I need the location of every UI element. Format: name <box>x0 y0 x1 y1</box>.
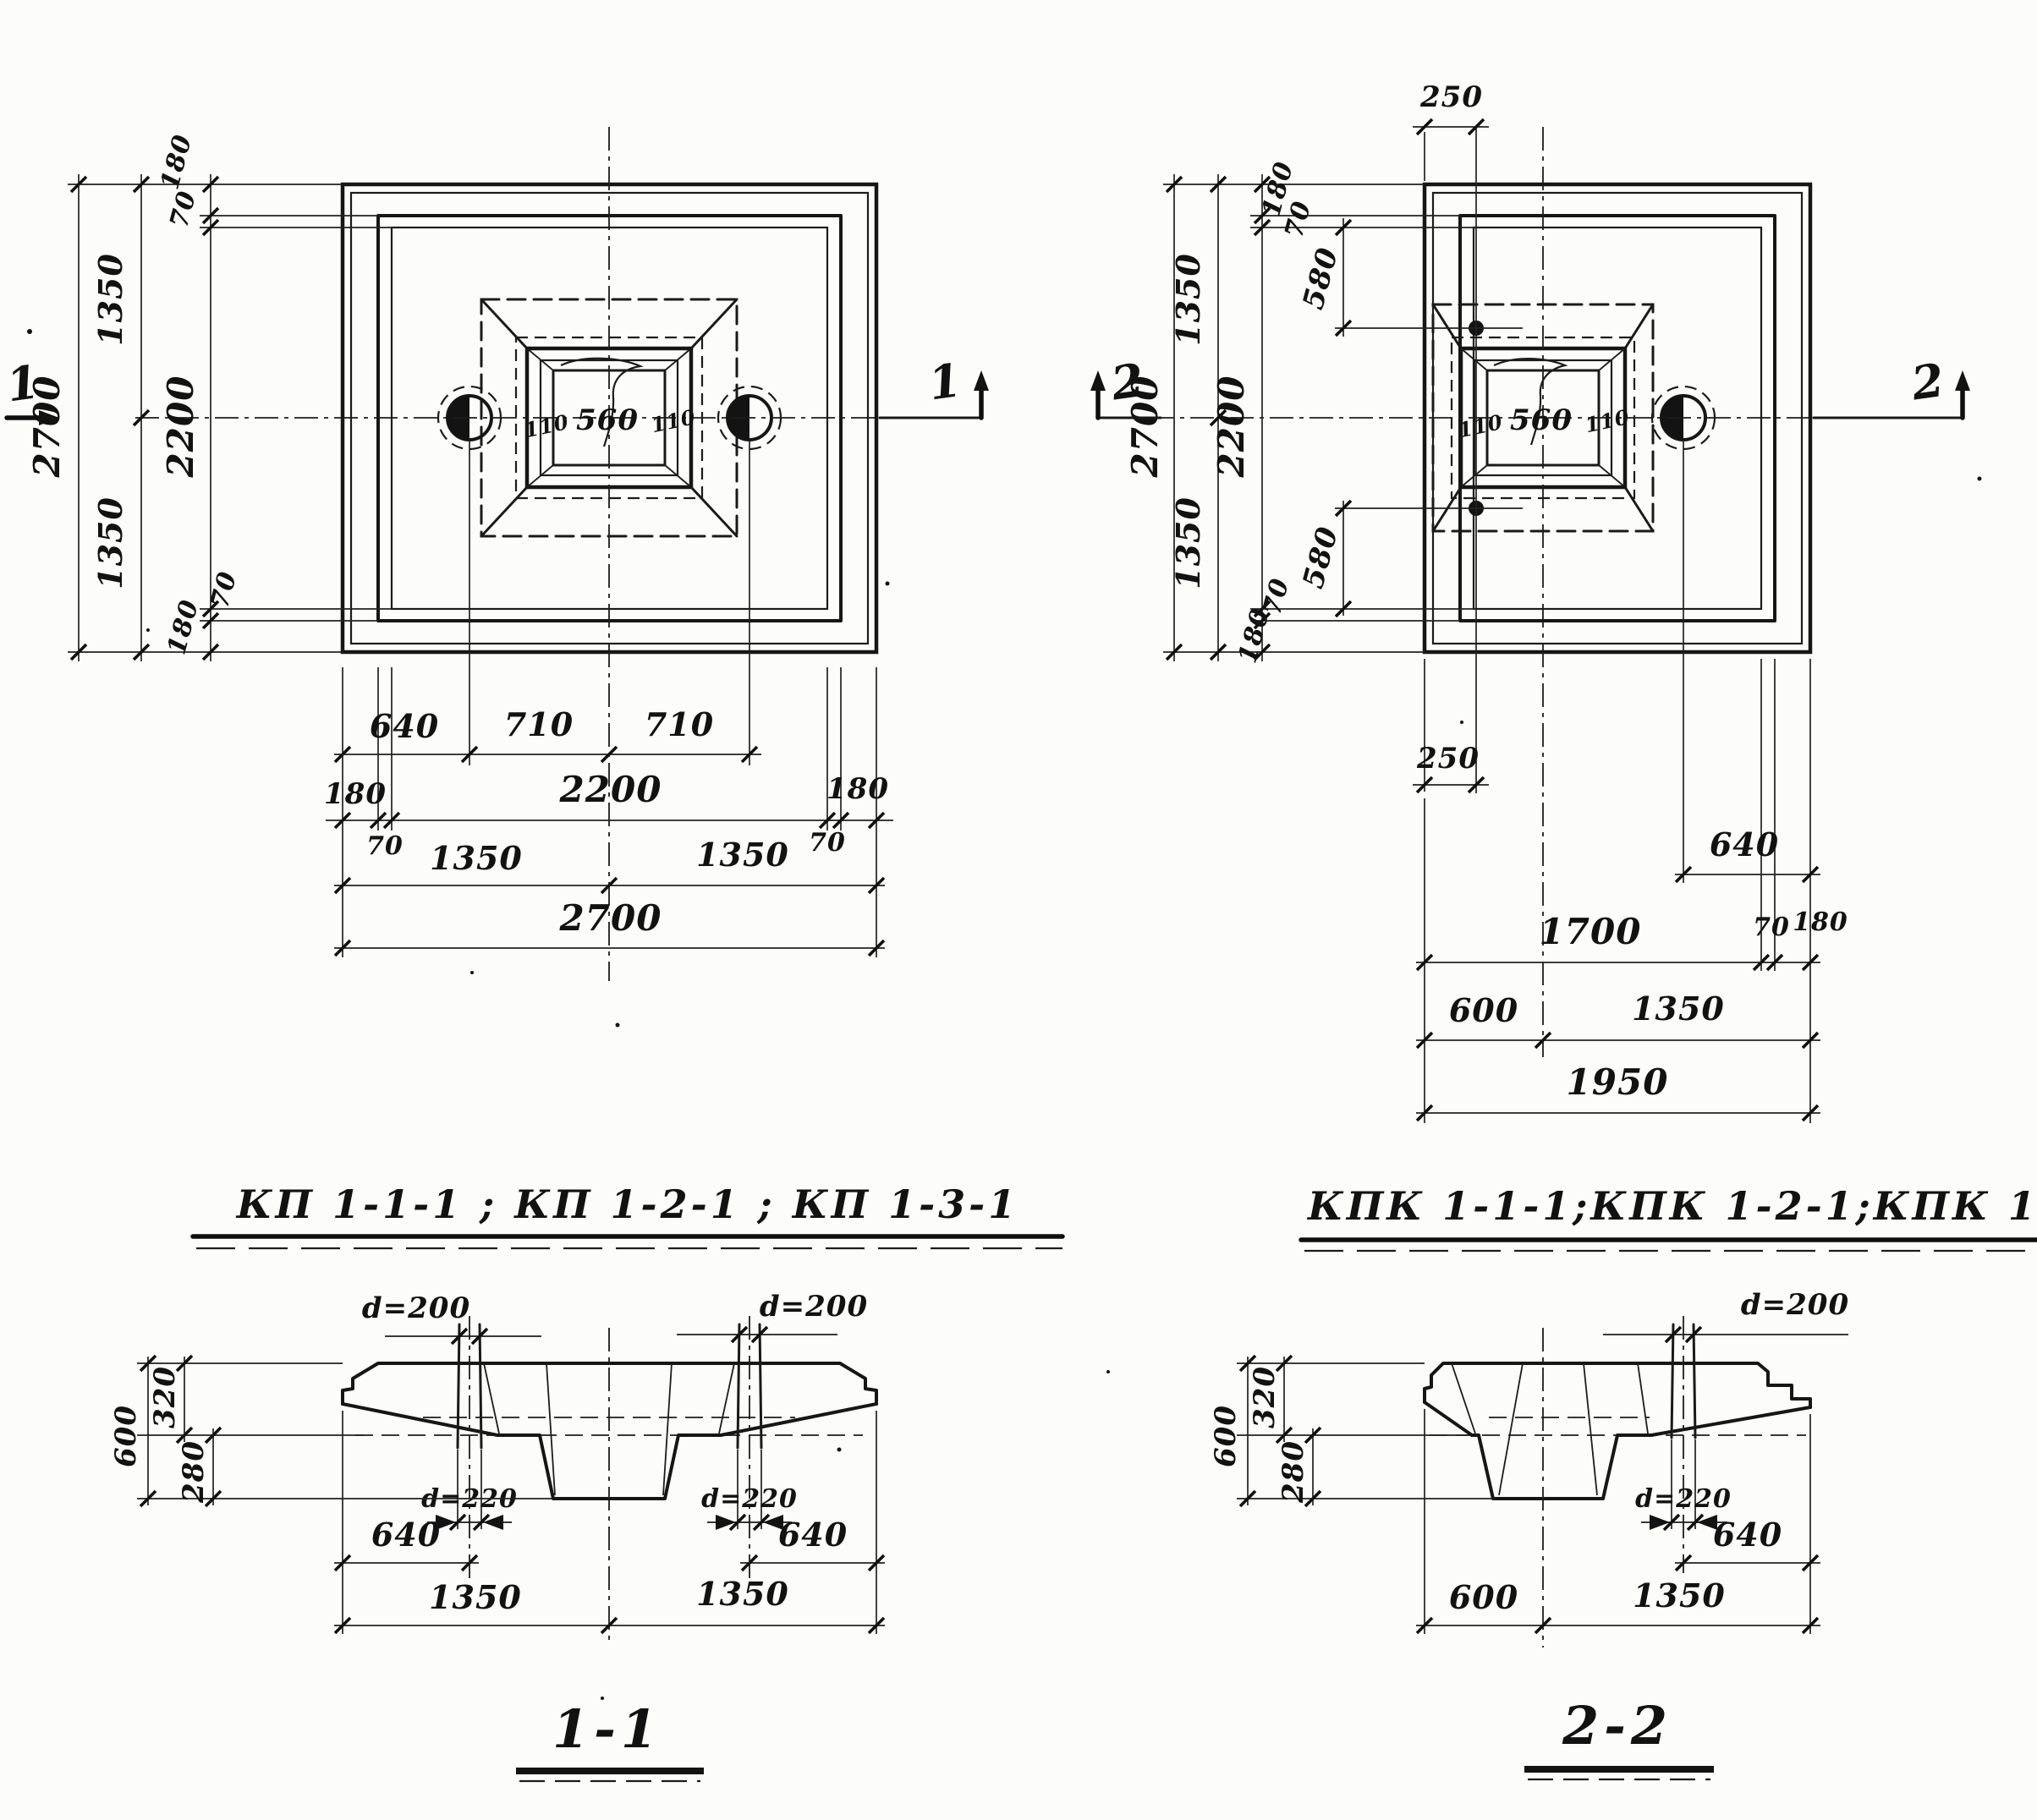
section-mark-1-right: 1 <box>880 353 989 418</box>
dim-label: 640 <box>778 1516 848 1554</box>
dim-label: 580 <box>1296 523 1345 592</box>
dim-label: 2700 <box>559 897 662 939</box>
dim-label: 1350 <box>1633 1576 1726 1614</box>
dim-label: 180 <box>162 596 205 657</box>
left-plan-side-dims: 2700 1350 1350 180 70 2200 70 180 <box>26 131 392 661</box>
dim-label: 1350 <box>696 1575 789 1613</box>
dim-label: 1350 <box>1169 253 1207 346</box>
dim-label: 320 <box>148 1366 182 1428</box>
section-2-2-dims: d=200 d=220 600 320 280 <box>1209 1288 1849 1634</box>
section-1-1: d=200 d=200 d=220 d=220 <box>109 1290 885 1781</box>
dim-label: 1350 <box>429 1578 522 1616</box>
dim-label: 640 <box>1713 1516 1782 1554</box>
dim-label: 250 <box>1416 742 1480 776</box>
dim-label: 1350 <box>696 836 789 874</box>
dim-label: 600 <box>109 1405 143 1467</box>
dim-label: 1350 <box>1169 496 1207 589</box>
dim-label: 560 <box>1510 403 1573 437</box>
section-1-1-dims: d=200 d=200 d=220 d=220 <box>109 1290 885 1634</box>
dim-label: 640 <box>1710 825 1779 863</box>
dim-label: 70 <box>1753 913 1790 942</box>
dim-label: 710 <box>645 705 714 743</box>
right-plan-socket-dims: 110 560 110 <box>1456 403 1632 442</box>
dim-label: 180 <box>155 131 198 192</box>
section-mark-label: 2 <box>1908 353 1948 411</box>
dim-label: 110 <box>1456 409 1505 442</box>
dim-label: d=200 <box>760 1290 868 1324</box>
dim-label: 180 <box>826 772 889 806</box>
dim-label: 280 <box>177 1440 211 1504</box>
dim-label: 70 <box>164 188 202 231</box>
dim-label: 180 <box>324 777 387 811</box>
section-1-1-linework <box>343 1316 876 1642</box>
left-series-title: КП 1-1-1 ; КП 1-2-1 ; КП 1-3-1 <box>235 1181 1019 1227</box>
dim-label: 1350 <box>91 253 129 346</box>
dim-label: 280 <box>1277 1440 1310 1504</box>
dim-label: 1350 <box>430 839 523 877</box>
dim-label: 710 <box>504 705 574 743</box>
section-mark-label: 1 <box>925 353 965 411</box>
dim-label: d=220 <box>1635 1484 1732 1514</box>
drawing-canvas: 2700 1350 1350 180 70 2200 70 180 110 56… <box>0 0 2037 1820</box>
dim-label: 180 <box>1233 605 1276 666</box>
section-mark-2-right: 2 <box>1814 353 1970 418</box>
dim-label: 600 <box>1209 1405 1243 1467</box>
dim-label: 320 <box>1248 1366 1282 1428</box>
dim-label: d=200 <box>1741 1288 1849 1322</box>
dim-label: d=220 <box>701 1484 798 1514</box>
dim-label: 1350 <box>91 496 129 589</box>
right-plan-side-dims: 2700 1350 1350 180 70 2200 70 180 580 58… <box>1124 158 1474 666</box>
section-2-2-title: 2-2 <box>1562 1695 1672 1757</box>
dim-label: 70 <box>366 831 404 861</box>
dim-label: 640 <box>371 1516 441 1554</box>
dim-label: 600 <box>1449 991 1518 1029</box>
dim-label: 2200 <box>160 376 201 479</box>
dim-label: 180 <box>1793 907 1848 937</box>
dim-label: 1950 <box>1567 1061 1669 1103</box>
dim-label: 110 <box>522 409 571 442</box>
series-titles: КП 1-1-1 ; КП 1-2-1 ; КП 1-3-1 КПК 1-1-1… <box>193 1181 2037 1251</box>
dim-label: 1350 <box>1632 989 1725 1028</box>
section-mark-label: 1 <box>3 354 43 413</box>
dim-label: 70 <box>809 828 846 858</box>
right-plan-view: 2700 1350 1350 180 70 2200 70 180 580 58… <box>1090 80 1970 1123</box>
section-1-1-title: 1-1 <box>552 1698 662 1760</box>
dim-label: 2200 <box>1211 376 1252 479</box>
dim-label: 1700 <box>1540 911 1642 952</box>
dim-label: 640 <box>370 707 439 745</box>
dim-label: 560 <box>576 403 639 437</box>
section-2-2: d=200 d=220 600 320 280 <box>1209 1288 1849 1779</box>
left-plan-socket-dims: 110 560 110 <box>522 403 698 442</box>
blueprint-page: 2700 1350 1350 180 70 2200 70 180 110 56… <box>0 0 2037 1820</box>
dim-label: 250 <box>1419 80 1483 114</box>
dim-label: d=200 <box>362 1291 470 1325</box>
dim-label: 580 <box>1296 244 1345 313</box>
dim-label: 600 <box>1449 1578 1518 1616</box>
dim-label: 2200 <box>559 769 662 810</box>
section-mark-label: 2 <box>1107 353 1148 411</box>
right-series-title: КПК 1-1-1;КПК 1-2-1;КПК 1-3-1 <box>1306 1183 2037 1229</box>
left-plan-view: 2700 1350 1350 180 70 2200 70 180 110 56… <box>3 127 989 981</box>
